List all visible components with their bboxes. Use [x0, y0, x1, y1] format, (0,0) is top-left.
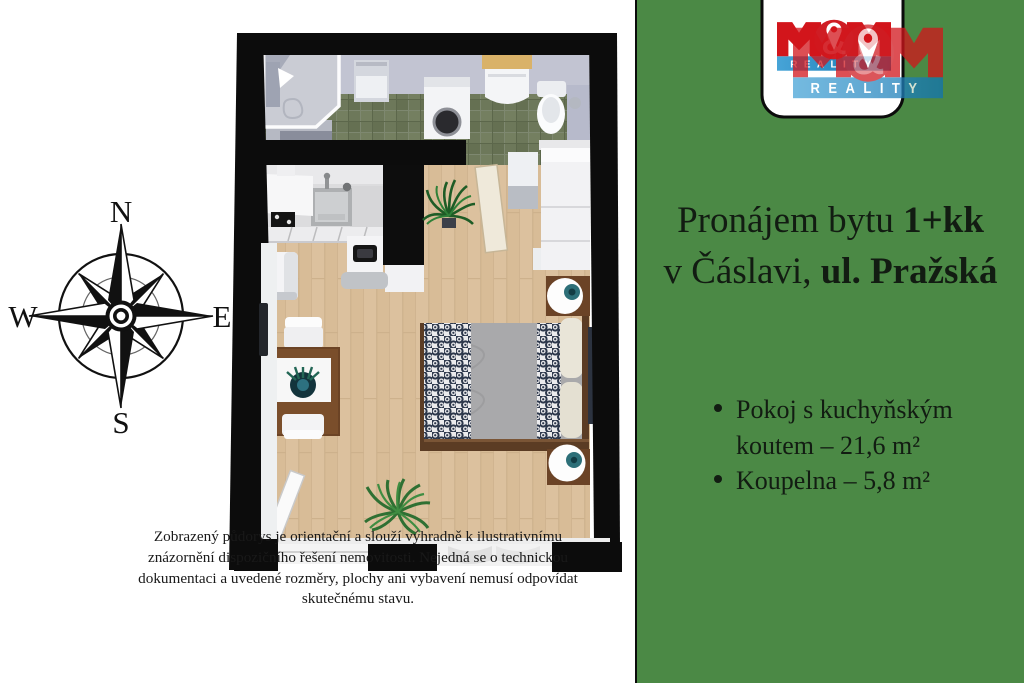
- svg-text:E: E: [213, 299, 232, 334]
- svg-text:N: N: [110, 194, 132, 229]
- svg-text:S: S: [112, 405, 129, 440]
- svg-text:W: W: [8, 299, 38, 334]
